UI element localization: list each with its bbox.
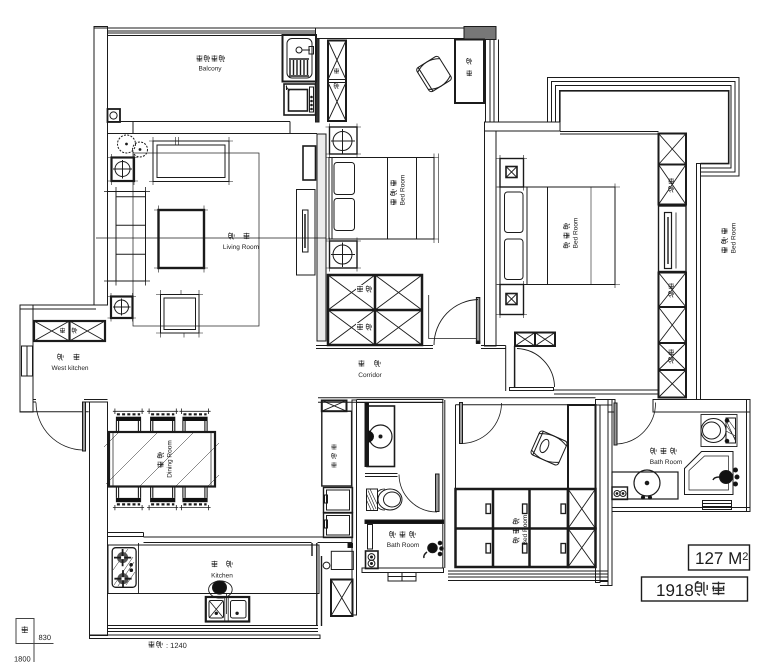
svg-text:Corridor: Corridor	[358, 372, 382, 379]
svg-text:: 1240: : 1240	[166, 641, 187, 650]
svg-text:Bed Room: Bed Room	[522, 515, 529, 546]
svg-text:830: 830	[39, 633, 52, 642]
svg-text:Bed Room: Bed Room	[400, 175, 407, 206]
svg-text:Kitchen: Kitchen	[211, 573, 233, 580]
svg-text:Bath Room: Bath Room	[387, 542, 420, 549]
svg-text:1800: 1800	[14, 655, 31, 664]
svg-text:Bed Room: Bed Room	[573, 218, 580, 249]
svg-text:1918: 1918	[656, 581, 694, 600]
svg-text:Bed Room: Bed Room	[731, 223, 738, 254]
svg-text:Living Room: Living Room	[223, 244, 259, 251]
svg-text:West kitchen: West kitchen	[51, 365, 88, 372]
svg-text:Bath Room: Bath Room	[650, 459, 683, 466]
svg-text:127 M2: 127 M2	[695, 549, 748, 568]
svg-text:Balcony: Balcony	[198, 66, 222, 73]
svg-text:Dining Room: Dining Room	[167, 440, 174, 478]
